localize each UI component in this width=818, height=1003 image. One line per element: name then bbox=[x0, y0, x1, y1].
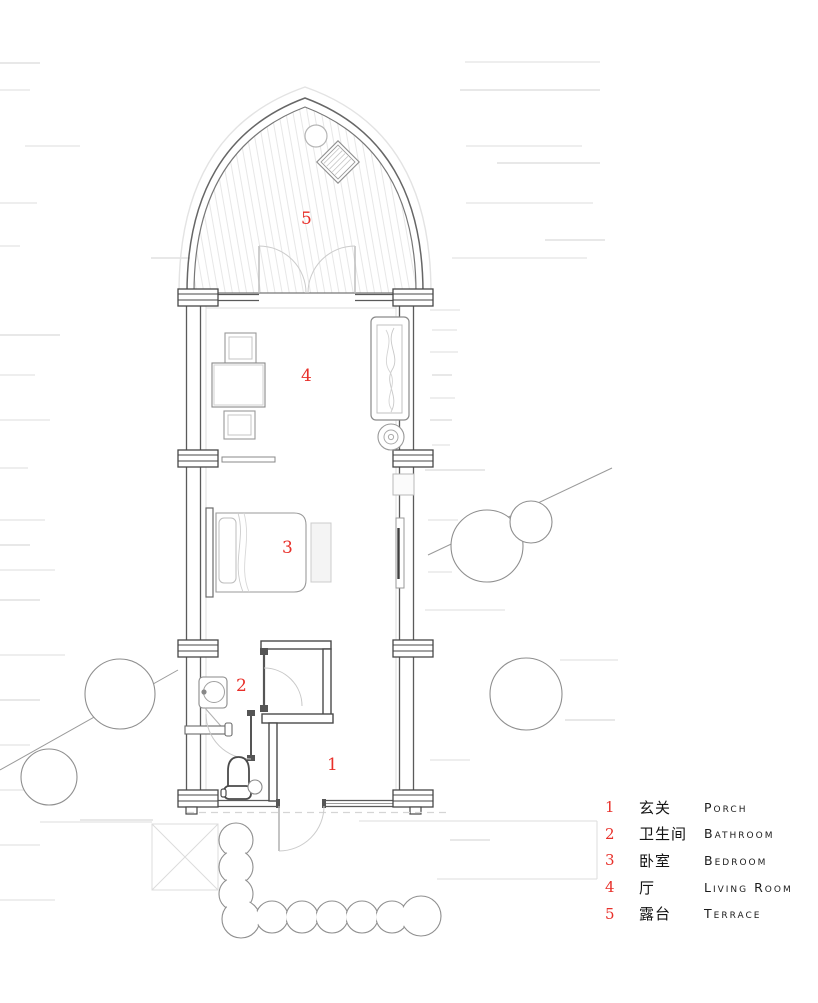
floor-drain bbox=[248, 780, 262, 794]
wall-cabinet bbox=[393, 474, 414, 495]
legend-row: 3 卧室 Bedroom bbox=[596, 847, 811, 874]
planting-hedge bbox=[219, 823, 441, 938]
entry-door bbox=[276, 799, 326, 851]
room-number-porch: 1 bbox=[327, 757, 338, 774]
legend-row: 1 玄关 Porch bbox=[596, 794, 811, 821]
side-table bbox=[378, 424, 404, 450]
legend: 1 玄关 Porch 2 卫生间 Bathroom 3 卧室 Bedroom 4… bbox=[596, 794, 811, 927]
legend-row: 2 卫生间 Bathroom bbox=[596, 821, 811, 848]
legend-row: 4 厅 Living Room bbox=[596, 874, 811, 901]
legend-number: 3 bbox=[596, 851, 639, 869]
legend-row: 5 露台 Terrace bbox=[596, 900, 811, 927]
faucet bbox=[201, 689, 206, 694]
wall-joint bbox=[393, 289, 433, 306]
room-number-terrace: 5 bbox=[301, 211, 312, 228]
terrace-table bbox=[305, 125, 327, 147]
headboard bbox=[206, 508, 213, 597]
legend-label-zh: 玄关 bbox=[639, 797, 704, 818]
legend-label-en: Bedroom bbox=[704, 853, 767, 868]
legend-label-en: Living Room bbox=[704, 880, 793, 895]
room-number-living-room: 4 bbox=[301, 368, 312, 385]
crossed-deck-marker bbox=[152, 824, 218, 890]
shower-door bbox=[260, 648, 302, 712]
legend-label-en: Porch bbox=[704, 800, 747, 815]
toilet bbox=[221, 757, 251, 799]
bench bbox=[311, 523, 331, 582]
pillow bbox=[219, 518, 236, 583]
sink bbox=[199, 677, 227, 708]
terrace-arch bbox=[179, 87, 431, 293]
wall-joint bbox=[393, 790, 433, 807]
legend-label-zh: 卫生间 bbox=[639, 823, 704, 844]
legend-number: 1 bbox=[596, 798, 639, 816]
legend-label-en: Terrace bbox=[704, 906, 761, 921]
shelf bbox=[222, 457, 275, 462]
room-number-bedroom: 3 bbox=[282, 540, 293, 557]
room-number-bathroom: 2 bbox=[236, 678, 247, 695]
chair bbox=[224, 411, 255, 439]
wall-joint bbox=[393, 450, 433, 467]
site-path bbox=[40, 821, 597, 879]
chair bbox=[225, 333, 256, 363]
tree bbox=[490, 658, 562, 730]
tree bbox=[85, 659, 155, 729]
legend-label-zh: 卧室 bbox=[639, 850, 704, 871]
wall-joint bbox=[178, 790, 218, 807]
tree bbox=[21, 749, 77, 805]
wall-joint bbox=[178, 640, 218, 657]
legend-number: 5 bbox=[596, 905, 639, 923]
legend-number: 4 bbox=[596, 878, 639, 896]
legend-label-en: Bathroom bbox=[704, 826, 775, 841]
shower-enclosure bbox=[261, 641, 333, 801]
wall-joint bbox=[178, 450, 218, 467]
sofa bbox=[371, 317, 409, 420]
floor-plan-page: 5 4 3 2 1 1 玄关 Porch 2 卫生间 Bathroom 3 卧室… bbox=[0, 0, 818, 1003]
legend-number: 2 bbox=[596, 825, 639, 843]
wall-joint bbox=[178, 289, 218, 306]
legend-label-zh: 厅 bbox=[639, 877, 704, 898]
dining-table bbox=[212, 363, 265, 407]
tv bbox=[396, 518, 404, 588]
wall-joint bbox=[393, 640, 433, 657]
legend-label-zh: 露台 bbox=[639, 903, 704, 924]
partition-wall bbox=[269, 723, 277, 801]
tree bbox=[510, 501, 552, 543]
